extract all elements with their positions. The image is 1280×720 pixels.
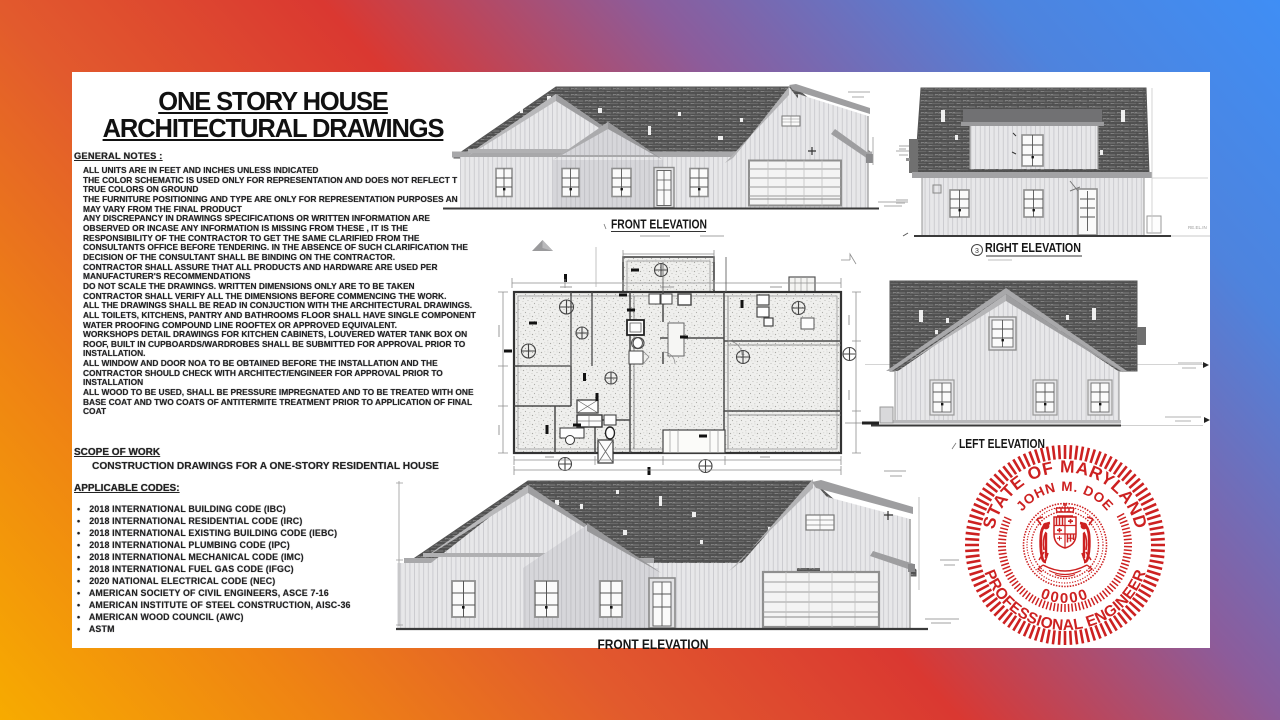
svg-text:RE.EL.IN: RE.EL.IN <box>1188 225 1207 230</box>
svg-text:RIGHT ELEVATION: RIGHT ELEVATION <box>985 240 1081 255</box>
svg-text:FRONT ELEVATION: FRONT ELEVATION <box>611 217 707 232</box>
svg-text:LEFT ELEVATION: LEFT ELEVATION <box>959 436 1045 451</box>
svg-text:00000: 00000 <box>1038 585 1091 607</box>
svg-text:FRONT ELEVATION: FRONT ELEVATION <box>598 636 709 652</box>
svg-text:3: 3 <box>975 248 979 255</box>
